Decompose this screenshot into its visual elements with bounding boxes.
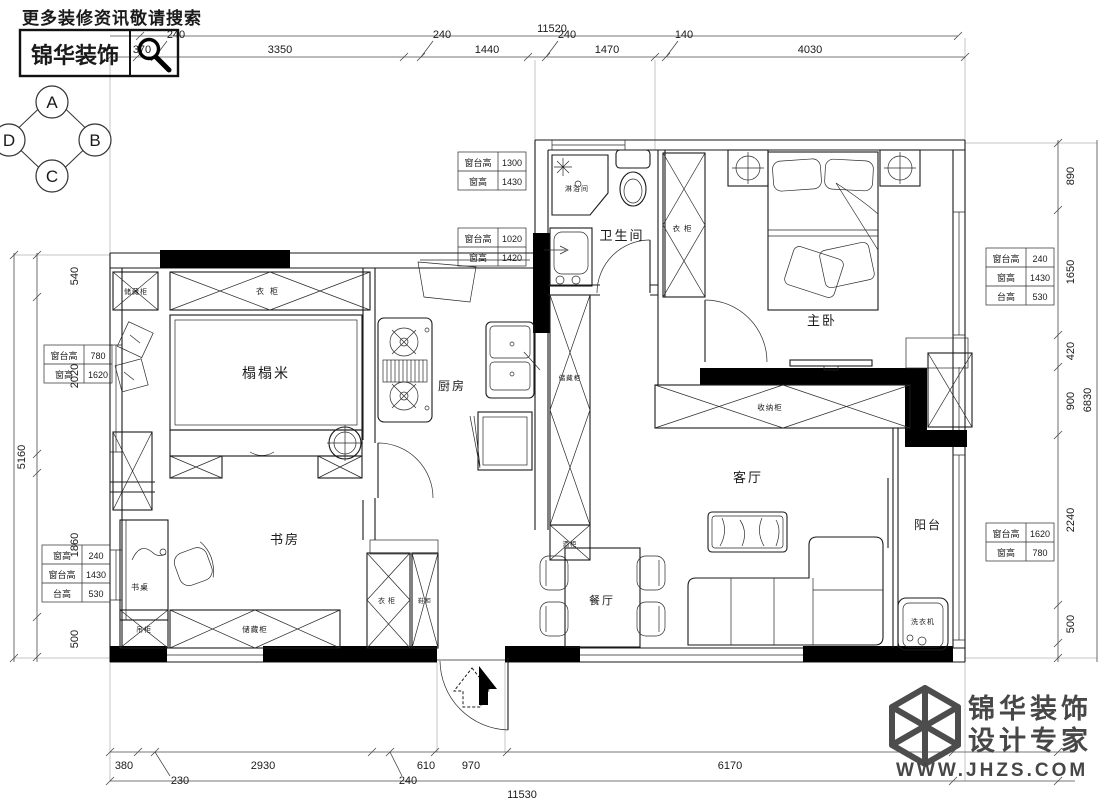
dim-left-seg3: 500 <box>69 630 81 648</box>
wt-cell: 530 <box>88 589 103 599</box>
label-dining: 餐厅 <box>589 593 615 607</box>
dim-bottom-seg6: 6170 <box>718 760 742 772</box>
label-washing-machine: 洗衣机 <box>911 617 935 626</box>
dim-left-seg0: 540 <box>69 267 81 285</box>
label-living-room: 客厅 <box>733 470 763 485</box>
wt-cell: 窗台高 <box>992 528 1019 539</box>
dim-top-seg3: 240 <box>433 29 451 41</box>
dim-right-seg1: 1650 <box>1065 260 1077 284</box>
wt-cell: 窗台高 <box>992 253 1019 264</box>
coffee-table <box>708 512 787 552</box>
footer-url: WWW.JHZS.COM <box>896 760 1088 781</box>
wt-cell: 窗高 <box>997 272 1015 283</box>
shower-area <box>552 155 608 215</box>
header-branding: 更多装修资讯敬请搜索 锦华装饰 <box>20 8 202 76</box>
footer-brand-line2: 设计专家 <box>968 725 1092 756</box>
label-hanging-cabinet: 吊柜 <box>136 625 152 634</box>
dim-right-seg4: 2240 <box>1065 508 1077 532</box>
storage-column <box>550 295 590 525</box>
label-kitchen: 厨房 <box>438 378 466 393</box>
footer-branding: 锦华装饰 设计专家 WWW.JHZS.COM <box>892 688 1092 781</box>
window-table-balcony-right: 窗台高 1620 窗高 780 <box>986 523 1054 561</box>
wt-cell: 1430 <box>86 570 106 580</box>
dim-top-seg6: 1470 <box>595 44 619 56</box>
dim-top-seg4: 1440 <box>475 44 499 56</box>
dim-bottom-seg5: 970 <box>462 760 480 772</box>
label-storage-living: 收纳柜 <box>757 402 783 412</box>
dim-bottom-seg0: 380 <box>115 760 133 772</box>
wt-cell: 窗高 <box>997 547 1015 558</box>
label-tatami: 榻榻米 <box>242 365 290 381</box>
label-wardrobe-tatami: 衣柜 <box>256 286 284 296</box>
label-bathroom: 卫生间 <box>599 228 644 243</box>
kitchen-sink <box>486 322 540 398</box>
label-balcony: 阳台 <box>914 517 942 532</box>
cube-logo-icon <box>892 688 958 764</box>
wt-cell: 240 <box>1032 254 1047 264</box>
dim-top-seg7: 140 <box>675 29 693 41</box>
wardrobe-study-cabinet <box>367 540 438 648</box>
label-master-bedroom: 主卧 <box>807 313 837 328</box>
furniture-layer <box>113 150 948 730</box>
bed <box>768 152 878 310</box>
wt-cell: 窗台高 <box>464 157 491 168</box>
compass-a: A <box>46 93 58 112</box>
dim-top-seg8: 4030 <box>798 44 822 56</box>
wt-cell: 台高 <box>53 588 71 599</box>
footer-brand-line1: 锦华装饰 <box>968 693 1092 724</box>
label-wardrobe-study: 衣柜 <box>378 596 398 605</box>
dim-top-total: 11520 <box>537 23 567 35</box>
wt-cell: 1620 <box>1030 529 1050 539</box>
floorplan-page: 370 240 3350 240 1440 240 1470 140 4030 … <box>0 0 1100 800</box>
wt-cell: 240 <box>88 551 103 561</box>
washbasin <box>544 228 592 286</box>
fridge <box>470 412 532 470</box>
wt-cell: 台高 <box>997 291 1015 302</box>
sofa <box>688 537 883 645</box>
wt-cell: 1300 <box>502 158 522 168</box>
dim-right-total: 6830 <box>1082 388 1094 412</box>
label-wine-cabinet: 酒柜 <box>563 539 578 548</box>
label-storage-hall: 储藏柜 <box>559 373 582 382</box>
wt-cell: 1420 <box>502 253 522 263</box>
floor-cushions <box>115 322 153 392</box>
dim-bottom-total: 11530 <box>507 789 537 800</box>
label-storage-tatami: 储藏柜 <box>124 287 148 296</box>
walls <box>110 140 972 662</box>
dim-right-seg0: 890 <box>1065 167 1077 185</box>
label-shoe-cabinet: 鞋柜 <box>418 597 432 605</box>
wt-cell: 窗高 <box>469 176 487 187</box>
label-wardrobe-bath: 衣柜 <box>673 223 696 233</box>
dim-right-seg2: 420 <box>1065 342 1077 360</box>
wt-cell: 780 <box>90 351 105 361</box>
wt-cell: 530 <box>1032 292 1047 302</box>
wt-cell: 窗高 <box>469 252 487 263</box>
wt-cell: 1430 <box>1030 273 1050 283</box>
compass-marker: A B C D <box>0 86 111 192</box>
dim-top-seg2: 3350 <box>268 44 292 56</box>
desk-unit <box>120 520 168 620</box>
kitchen-door <box>378 443 433 498</box>
window-table-bedroom-right: 窗台高 240 窗高 1430 台高 530 <box>986 248 1054 305</box>
label-desk: 书桌 <box>131 582 149 592</box>
floorplan-drawing: 370 240 3350 240 1440 240 1470 140 4030 … <box>0 0 1100 800</box>
dim-bottom-seg3: 240 <box>399 775 417 787</box>
entry-arrow-icon <box>454 666 497 707</box>
compass-c: C <box>46 167 58 186</box>
dim-bottom-seg1: 230 <box>171 775 189 787</box>
label-storage-study: 储藏柜 <box>242 624 268 634</box>
desk-chair <box>170 540 218 588</box>
wt-cell: 窗台高 <box>48 569 75 580</box>
dim-left-total: 5160 <box>16 445 28 469</box>
label-study: 书房 <box>270 532 300 547</box>
search-hint-text: 更多装修资讯敬请搜索 <box>22 8 202 28</box>
window-table-bath-top: 窗台高 1300 窗高 1430 <box>458 152 526 190</box>
dim-right-seg3: 900 <box>1065 392 1077 410</box>
compass-d: D <box>3 131 15 150</box>
wt-cell: 窗高 <box>53 550 71 561</box>
toilet <box>616 150 650 206</box>
stove <box>378 318 432 422</box>
nightstand-left <box>728 150 768 186</box>
dim-right-seg5: 500 <box>1065 615 1077 633</box>
dim-bottom-seg4: 610 <box>417 760 435 772</box>
brand-text: 锦华装饰 <box>31 43 119 68</box>
compass-b: B <box>89 131 100 150</box>
wt-cell: 780 <box>1032 548 1047 558</box>
nightstand-right <box>880 150 920 186</box>
corner-cabinet <box>113 432 152 510</box>
wt-cell: 1020 <box>502 234 522 244</box>
wt-cell: 窗台高 <box>50 350 77 361</box>
dim-bottom-seg2: 2930 <box>251 760 275 772</box>
wt-cell: 1430 <box>502 177 522 187</box>
label-shower: 淋浴间 <box>565 184 589 193</box>
wt-cell: 窗高 <box>55 369 73 380</box>
wt-cell: 1620 <box>88 370 108 380</box>
wt-cell: 窗台高 <box>464 233 491 244</box>
